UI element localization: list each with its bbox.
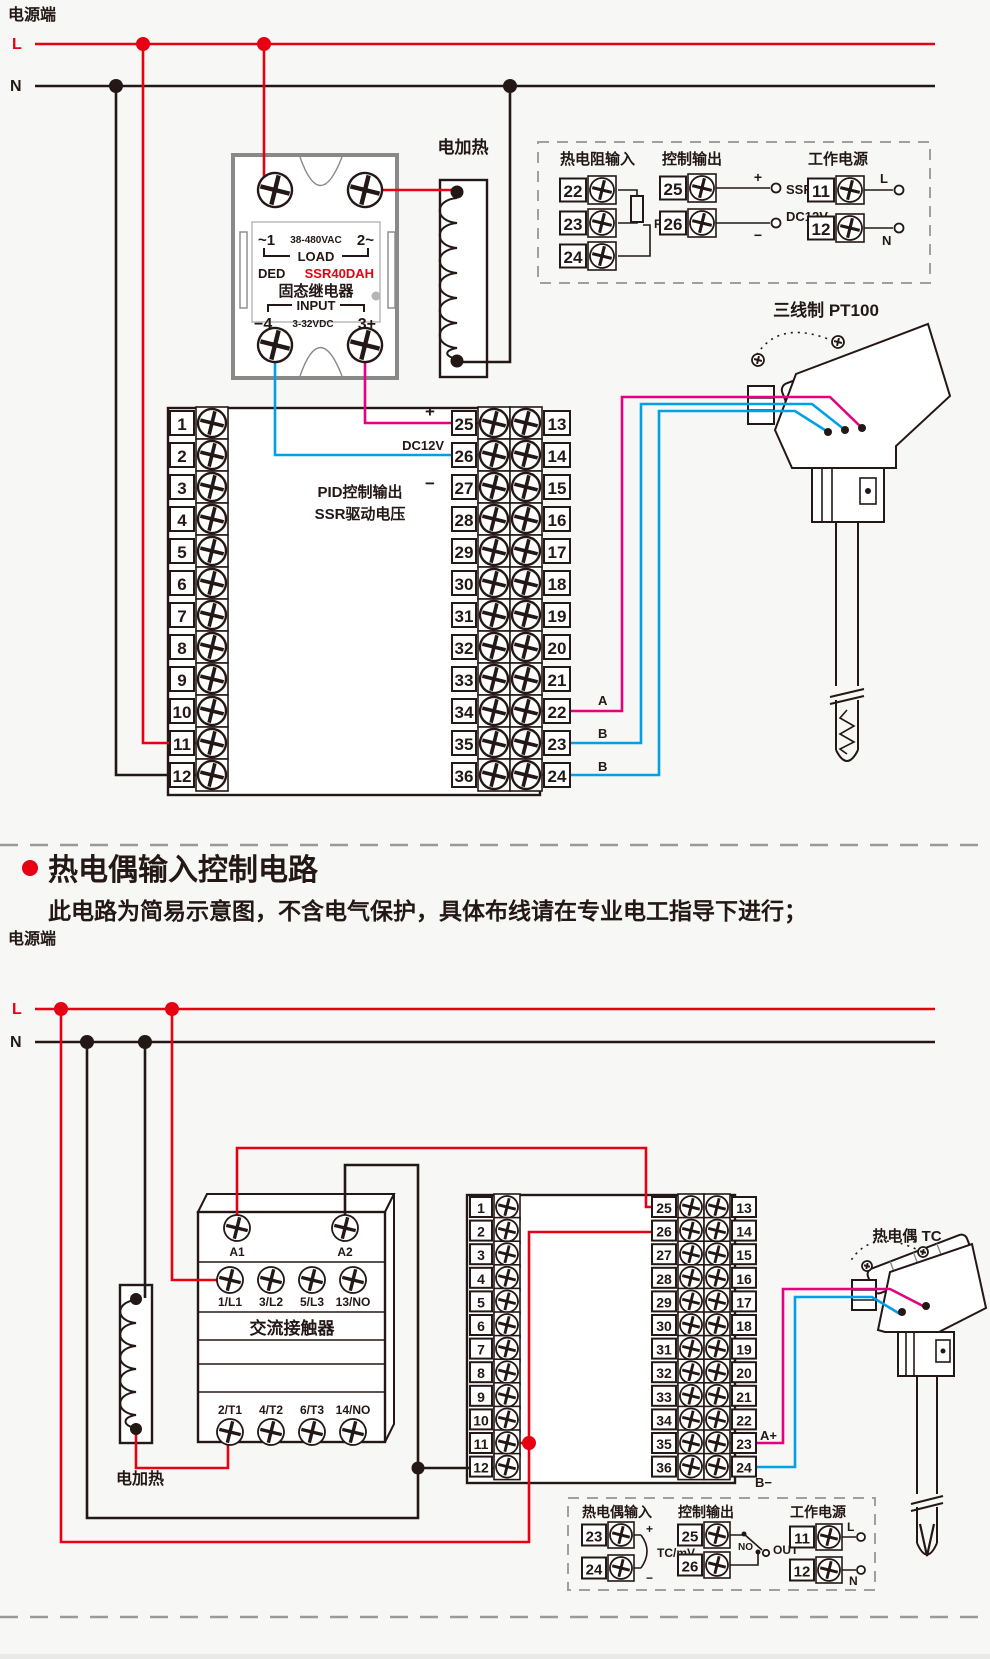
line-l-label: L [12,36,22,53]
terminal-number: 12 [473,1460,489,1476]
terminal-number: 5 [177,543,186,562]
terminal-number: 26 [455,447,474,466]
ssr-load-label: LOAD [298,249,335,264]
line-l-label-2: L [12,1001,22,1018]
tc-terminals: 2324 [582,1522,634,1582]
junction-dot [756,1550,761,1555]
tc-plus: + [646,1522,653,1536]
terminal-number: 6 [477,1318,485,1334]
ssr-input-label: INPUT [297,298,336,313]
terminal-number: 12 [794,1563,811,1580]
terminal-number: 5 [477,1294,485,1310]
terminal-number: 11 [173,735,191,754]
terminal-number: 11 [794,1530,810,1547]
terminal-number: 23 [548,735,567,754]
terminal-number: 25 [664,180,683,199]
ssr-minus-terminal [772,219,781,228]
out-minus: − [754,227,762,243]
terminal-number: 20 [736,1365,752,1381]
terminal-number: 32 [455,639,474,658]
rtd-input-title: 热电阻输入 [560,150,635,168]
terminal-number: 15 [736,1247,752,1263]
working-power-title: 工作电源 [808,150,868,168]
contactor-name: 交流接触器 [250,1318,336,1338]
terminal-number: 13 [548,415,567,434]
tc-head-body [878,1244,986,1334]
ssr-term1: ~1 [258,232,275,249]
pwr-n-terminal [895,224,904,233]
terminal-number: 32 [656,1365,672,1381]
junction-dot [109,79,123,93]
ssr-vac: 38-480VAC [290,235,342,246]
terminal-number: 14 [548,447,567,466]
terminal-number: 11 [812,182,830,201]
terminal-number: 26 [656,1224,672,1240]
terminal-number: 34 [455,703,474,722]
terminal-number: 11 [474,1436,489,1452]
pid-caption-2: SSR驱动电压 [315,505,406,523]
dc12v-minus: − [425,474,435,493]
section-header: 热电偶输入控制电路 此电路为简易示意图，不含电气保护，具体布线请在专业电工指导下… [22,854,807,924]
tc-sensor: 热电偶 TC [850,1227,986,1556]
pt100-sensor: 三线制 PT100 [748,300,950,761]
terminal-number: 17 [736,1294,752,1310]
pwr-n-terminal-2 [857,1566,865,1574]
terminal-number: 10 [173,703,192,722]
pt100-probe [836,522,858,761]
junction-dot [138,1035,152,1049]
terminal-number: 26 [664,215,683,234]
terminal-number: 7 [477,1342,485,1358]
wire-label-b-minus: B− [755,1475,772,1490]
line-n-label: N [10,78,22,95]
terminal-number: 18 [548,575,567,594]
junction-dot [412,1462,425,1475]
terminal-number: 15 [548,479,567,498]
terminal-number: 1 [177,415,186,434]
terminal-number: 33 [455,671,474,690]
junction-dot [451,186,464,199]
power-terminal-label: 电源端 [8,5,56,24]
terminal-number: 35 [455,735,474,754]
terminal-number: 20 [548,639,567,658]
terminal-number: 25 [455,415,474,434]
terminal-number: 23 [736,1436,752,1452]
terminal-number: 10 [473,1412,489,1428]
terminal-number: 24 [564,248,583,267]
terminal-number: 2 [177,447,186,466]
wire-label-b2: B [598,759,607,774]
rtd-terminals: 222324 [560,175,617,270]
out-plus: + [754,169,762,185]
contactor-3l2: 3/L2 [259,1295,283,1309]
terminal-number: 27 [656,1247,672,1263]
dc12v-plus: + [425,402,435,421]
junction-dot [130,1423,142,1435]
junction-dot [858,424,866,432]
tc-fitting [852,1280,876,1310]
terminal-number: 19 [736,1342,752,1358]
junction-dot [165,1002,179,1016]
junction-dot [80,1035,94,1049]
junction-dot [451,355,464,368]
terminal-number: 7 [177,607,186,626]
bot-block-right-strip: 131415161718192021222324 [704,1194,756,1480]
terminal-number: 22 [564,182,583,201]
terminal-number: 24 [736,1460,752,1476]
tc-title: 热电偶 TC [872,1227,941,1245]
terminal-number: 9 [177,671,186,690]
pt100-cap-arc [756,332,840,356]
junction-dot [136,37,150,51]
contactor-4t2: 4/T2 [259,1403,283,1417]
terminal-number: 18 [736,1318,752,1334]
junction-dot [130,1293,142,1305]
junction-dot [742,1532,747,1537]
terminal-number: 23 [564,215,583,234]
bullet-icon [22,860,38,876]
terminal-number: 22 [548,703,567,722]
top-block-right-strip: 131415161718192021222324 [509,406,570,792]
wiring-diagram-svg: 电源端 L N ~1 38-480VAC 2~ LOAD DED SSR40DA… [0,0,990,1654]
terminal-number: 31 [455,607,474,626]
power-terminal-label-2: 电源端 [8,929,56,948]
terminal-number: 23 [586,1528,603,1545]
ssr-brand: DED [258,266,285,281]
pwr-l-terminal [895,186,904,195]
ssr-vdc: 3-32VDC [292,319,333,330]
pwr-l-terminal-2 [857,1533,865,1541]
wire-label-a-plus: A+ [760,1428,777,1443]
pwr-n-label: N [882,233,891,248]
terminal-number: 30 [455,575,474,594]
bottom-circuit: 电源端 L N A1 A2 1/L1 3/L2 5/L3 13/NO 交流接触器… [8,929,986,1590]
terminal-number: 25 [682,1528,699,1545]
terminal-number: 3 [477,1247,485,1263]
ssr-plus-terminal [772,184,781,193]
terminal-number: 1 [477,1200,485,1216]
junction-dot [54,1002,68,1016]
terminal-number: 12 [812,220,831,239]
top-circuit: 电源端 L N ~1 38-480VAC 2~ LOAD DED SSR40DA… [8,5,950,795]
terminal-number: 36 [455,767,474,786]
terminal-number: 33 [656,1389,672,1405]
terminal-number: 21 [736,1389,752,1405]
junction-dot [841,426,849,434]
terminal-number: 24 [548,767,567,786]
out-contact [763,1550,769,1556]
wire-label-a: A [598,693,608,708]
contactor-5l3: 5/L3 [300,1295,324,1309]
contactor-13no: 13/NO [336,1295,371,1309]
terminal-number: 30 [656,1318,672,1334]
contactor-a2: A2 [337,1245,353,1259]
rtd-resistor [631,196,643,222]
terminal-number: 28 [656,1271,672,1287]
terminal-number: 16 [736,1271,752,1287]
pid-caption-1: PID控制输出 [317,483,402,501]
control-output-title-2: 控制输出 [678,1504,734,1520]
contactor-14no: 14/NO [336,1403,371,1417]
terminal-number: 2 [477,1224,485,1240]
terminal-number: 34 [656,1412,672,1428]
control-output-title: 控制输出 [662,150,722,168]
terminal-number: 29 [656,1294,672,1310]
wire-label-b1: B [598,726,607,741]
heater-bottom-label: 电加热 [116,1469,164,1488]
no-label: NO [738,1542,753,1553]
junction-dot [922,1302,930,1310]
terminal-number: 4 [177,511,187,530]
contactor-1l1: 1/L1 [218,1295,242,1309]
dc12v-label: DC12V [402,438,444,453]
terminal-number: 27 [455,479,474,498]
junction-dot [503,79,517,93]
line-n-label-2: N [10,1034,22,1051]
terminal-number: 16 [548,511,567,530]
terminal-number: 29 [455,543,474,562]
terminal-number: 31 [656,1342,672,1358]
terminal-number: 6 [177,575,186,594]
wiring-diagram-page: 电源端 L N ~1 38-480VAC 2~ LOAD DED SSR40DA… [0,0,990,1654]
terminal-number: 28 [455,511,474,530]
tc-input-title: 热电偶输入 [582,1504,652,1520]
working-power-title-2: 工作电源 [790,1504,846,1520]
pwr-n-label-2: N [849,1574,858,1588]
pwr-l-label-2: L [847,1520,854,1534]
terminal-number: 12 [173,767,192,786]
contactor-2t1: 2/T1 [218,1403,242,1417]
terminal-number: 14 [736,1224,752,1240]
heater-top-label: 电加热 [438,137,489,157]
junction-dot [898,1308,906,1316]
pwr-l-label: L [880,171,888,186]
terminal-number: 22 [736,1412,752,1428]
terminal-number: 25 [656,1200,672,1216]
wire-24-to-pt100-b2 [526,411,828,775]
terminal-number: 13 [736,1200,752,1216]
pt100-element [840,710,854,754]
terminal-number: 17 [548,543,567,562]
terminal-number: 3 [177,479,186,498]
junction-dot [941,1349,946,1354]
ssr-term2: 2~ [357,232,374,249]
heater-top: 电加热 [438,137,489,377]
ssr-model: SSR40DAH [305,266,374,281]
terminal-number: 4 [477,1271,485,1287]
pt100-title: 三线制 PT100 [773,300,879,320]
section-title: 热电偶输入控制电路 [48,854,319,887]
junction-dot [257,37,271,51]
terminal-number: 8 [177,639,186,658]
screw-icon [751,353,766,368]
contactor-a1: A1 [229,1245,245,1259]
junction-dot [824,428,832,436]
terminal-number: 35 [656,1436,672,1452]
terminal-number: 26 [682,1558,699,1575]
terminal-number: 21 [548,671,567,690]
screw-icon [831,335,846,350]
ssr-led [372,292,381,301]
junction-dot [522,1436,536,1450]
tc-minus: − [646,1571,653,1585]
terminal-number: 9 [477,1389,485,1405]
terminal-number: 24 [586,1561,603,1578]
terminal-number: 19 [548,607,567,626]
out-terminals: 2526 [660,173,717,237]
contactor-6t3: 6/T3 [300,1403,324,1417]
section-note: 此电路为简易示意图，不含电气保护，具体布线请在专业电工指导下进行； [48,898,807,924]
heater-bottom: 电加热 [116,1285,164,1488]
terminal-number: 8 [477,1365,485,1381]
junction-dot [865,488,871,494]
terminal-number: 36 [656,1460,672,1476]
